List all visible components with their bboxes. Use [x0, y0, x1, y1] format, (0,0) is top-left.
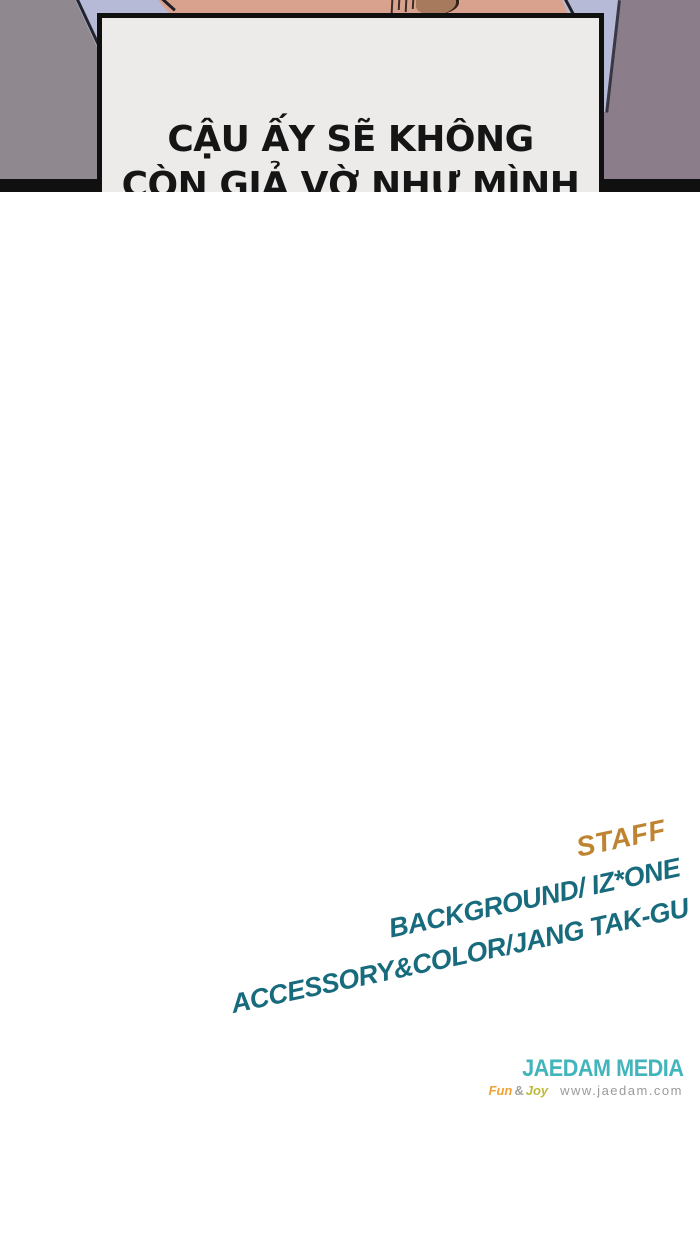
- speech-box: CẬU ẤY SẼ KHÔNG CÒN GIẢ VỜ NHƯ MÌNH KHÔN…: [97, 13, 604, 192]
- tagline-fun: Fun: [489, 1084, 513, 1098]
- background-wall-left: [0, 0, 97, 180]
- dialogue-text: CẬU ẤY SẼ KHÔNG CÒN GIẢ VỜ NHƯ MÌNH KHÔN…: [122, 117, 580, 193]
- publisher-tagline: Fun & Joy www.jaedam.com: [489, 1084, 684, 1098]
- publisher-logo: JAEDAM MEDIA Fun & Joy www.jaedam.com: [489, 1057, 684, 1098]
- staff-credits: STAFF BACKGROUND/ IZ*ONE ACCESSORY&COLOR…: [198, 811, 691, 1023]
- webtoon-page: CẬU ẤY SẼ KHÔNG CÒN GIẢ VỜ NHƯ MÌNH KHÔN…: [0, 0, 700, 1247]
- comic-panel: CẬU ẤY SẼ KHÔNG CÒN GIẢ VỜ NHƯ MÌNH KHÔN…: [0, 0, 700, 192]
- background-wall-right: [604, 0, 700, 180]
- tagline-ampersand: &: [514, 1084, 523, 1098]
- tagline-joy: Joy: [526, 1084, 548, 1098]
- publisher-website: www.jaedam.com: [560, 1084, 683, 1098]
- publisher-name: JAEDAM MEDIA: [508, 1057, 683, 1081]
